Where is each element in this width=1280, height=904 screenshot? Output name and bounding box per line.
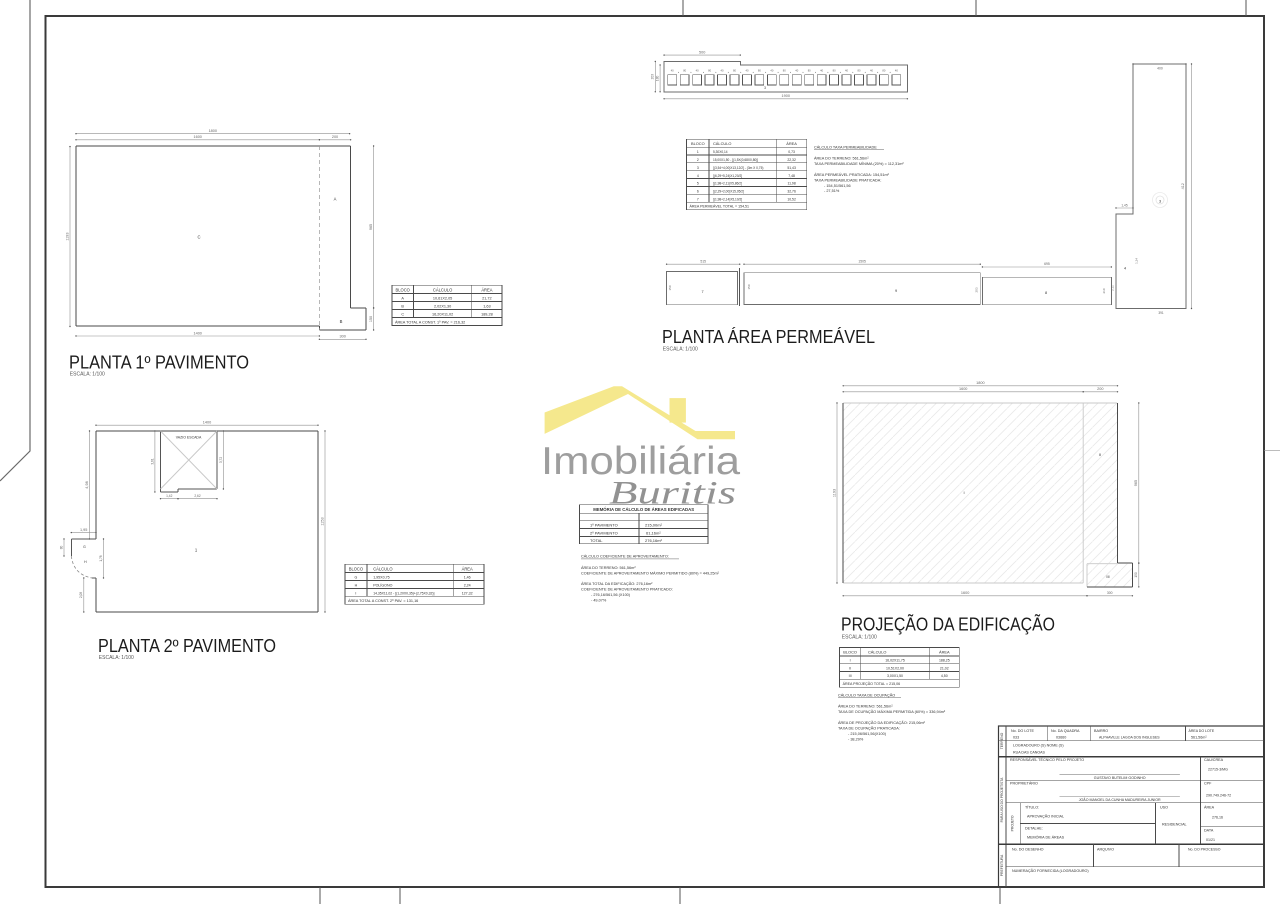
svg-text:965: 965 [369, 224, 373, 230]
svg-text:80: 80 [808, 69, 811, 73]
svg-text:TAXA PERMEABILIDADE PRATICADA:: TAXA PERMEABILIDADE PRATICADA: [814, 178, 881, 182]
svg-text:10,61X2,05: 10,61X2,05 [433, 296, 452, 300]
svg-text:PROJEÇÃO DA EDIFICAÇÃO: PROJEÇÃO DA EDIFICAÇÃO [841, 614, 1055, 635]
svg-text:40: 40 [696, 69, 699, 73]
svg-text:300: 300 [340, 335, 346, 339]
svg-text:ÁREA: ÁREA [939, 650, 950, 655]
svg-text:POLÍGONO: POLÍGONO [373, 584, 392, 588]
svg-text:I: I [355, 591, 356, 595]
svg-text:5: 5 [697, 182, 699, 186]
svg-text:40: 40 [820, 69, 823, 73]
svg-text:1800: 1800 [976, 381, 984, 385]
svg-text:2,24: 2,24 [464, 584, 471, 588]
svg-text:PROJETO: PROJETO [1011, 815, 1015, 831]
svg-text:7: 7 [697, 197, 699, 201]
svg-text:CÁLCULO: CÁLCULO [433, 287, 452, 292]
svg-text:1º PAVIMENTO: 1º PAVIMENTO [590, 523, 618, 528]
svg-text:ÁREA TOTAL A CONST. 1º PAV. =: ÁREA TOTAL A CONST. 1º PAV. = 216,32 [395, 320, 465, 324]
svg-text:4: 4 [697, 174, 699, 178]
svg-text:II: II [1099, 452, 1101, 457]
svg-text:COEFICIENTE DE APROVEITAMENTO: COEFICIENTE DE APROVEITAMENTO PRATICADO: [581, 588, 673, 592]
svg-text:No. DA QUADRA: No. DA QUADRA [1051, 729, 1080, 733]
svg-text:[(1,98+2,11)X5,86/2]: [(1,98+2,11)X5,86/2] [713, 182, 742, 186]
svg-text:3,72: 3,72 [219, 457, 223, 463]
svg-text:127,32: 127,32 [462, 591, 473, 595]
svg-text:2: 2 [697, 158, 699, 162]
svg-text:BLOCO: BLOCO [843, 650, 857, 655]
svg-text:200: 200 [1097, 387, 1103, 391]
svg-text:11,98: 11,98 [787, 182, 795, 186]
svg-text:300: 300 [1107, 591, 1113, 595]
svg-text:500: 500 [699, 51, 705, 55]
svg-text:USO: USO [1160, 805, 1168, 809]
svg-text:1600: 1600 [961, 591, 969, 595]
svg-text:80: 80 [833, 69, 836, 73]
svg-text:8: 8 [1045, 291, 1047, 295]
svg-text:- 154,51/561,56: - 154,51/561,56 [824, 184, 851, 188]
svg-text:40: 40 [845, 69, 848, 73]
svg-text:DATA: DATA [1204, 829, 1214, 833]
svg-text:BLOCO: BLOCO [396, 287, 410, 292]
svg-text:3: 3 [1159, 199, 1161, 203]
svg-text:MEMÓRIA DE ÁREAS: MEMÓRIA DE ÁREAS [1027, 835, 1065, 840]
svg-text:1: 1 [195, 547, 198, 552]
svg-text:H: H [355, 584, 358, 588]
svg-text:3,61: 3,61 [150, 458, 154, 464]
svg-text:4,50: 4,50 [941, 674, 948, 678]
svg-text:200: 200 [332, 135, 338, 139]
svg-text:80: 80 [733, 69, 736, 73]
svg-text:400: 400 [1157, 67, 1163, 71]
svg-text:80: 80 [59, 546, 63, 550]
svg-text:Buritis: Buritis [609, 476, 736, 512]
svg-text:1400: 1400 [193, 331, 201, 335]
svg-text:ALPHAVILLE LAGOA DOS INGLESES: ALPHAVILLE LAGOA DOS INGLESES [1099, 736, 1160, 740]
svg-text:4: 4 [1124, 266, 1126, 270]
svg-text:COEFICIENTE DE APROVEITAMENTO: COEFICIENTE DE APROVEITAMENTO MÁXIMO PER… [581, 572, 720, 576]
svg-text:I: I [963, 490, 964, 495]
svg-text:TOTAL: TOTAL [590, 538, 603, 543]
svg-text:ÁREA DO TERRENO: 561,56m²: ÁREA DO TERRENO: 561,56m² [838, 704, 893, 708]
svg-text:215,00m²: 215,00m² [645, 523, 663, 528]
svg-text:[(6,29+5,24)X1,20/2]: [(6,29+5,24)X1,20/2] [713, 174, 742, 178]
svg-text:H: H [84, 560, 87, 564]
svg-text:ARQUIVO: ARQUIVO [1097, 848, 1114, 852]
svg-text:CÁLCULO: CÁLCULO [713, 141, 731, 146]
svg-text:695: 695 [1044, 262, 1050, 266]
svg-text:CÁLCULO TAXA PERMEABILIDADE: CÁLCULO TAXA PERMEABILIDADE [814, 145, 877, 149]
svg-text:CÁLCULO: CÁLCULO [373, 567, 392, 572]
svg-text:412: 412 [1181, 183, 1185, 189]
svg-text:No. DO LOTE: No. DO LOTE [1011, 729, 1034, 733]
svg-text:1800: 1800 [209, 129, 217, 133]
svg-text:TAXA PERMEABILIDADE MÍNIMA (20: TAXA PERMEABILIDADE MÍNIMA (20%) = 112,3… [814, 162, 904, 166]
svg-text:10,51X2,00: 10,51X2,00 [886, 666, 904, 670]
svg-text:PLANTA 1º PAVIMENTO: PLANTA 1º PAVIMENTO [69, 352, 249, 372]
svg-text:150: 150 [1134, 572, 1138, 578]
svg-text:GUSTAVO BUTELIM GODINHO: GUSTAVO BUTELIM GODINHO [1094, 776, 1146, 780]
svg-text:C: C [401, 313, 404, 317]
svg-text:15,00X1,50 - [(1,5X(0,68X0,80): 15,00X1,50 - [(1,5X(0,68X0,80)] [713, 158, 758, 162]
svg-text:1,95X0,75: 1,95X0,75 [373, 576, 389, 580]
svg-text:3: 3 [764, 86, 766, 90]
svg-text:40: 40 [721, 69, 724, 73]
svg-text:G: G [355, 576, 358, 580]
svg-text:ÁREA DO TERRENO: 561,56m²: ÁREA DO TERRENO: 561,56m² [814, 156, 869, 160]
svg-text:[(2,29+2,00)X15,05/2]: [(2,29+2,00)X15,05/2] [713, 189, 744, 193]
svg-text:40: 40 [895, 69, 898, 73]
svg-text:ÁREA DO TERRENO: 561,56m²: ÁREA DO TERRENO: 561,56m² [581, 566, 636, 570]
svg-text:LOGRADOURO (S) NOME (S): LOGRADOURO (S) NOME (S) [1013, 743, 1064, 747]
svg-text:32,76: 32,76 [787, 189, 796, 193]
svg-text:2,11: 2,11 [1111, 285, 1115, 291]
svg-text:1,78: 1,78 [99, 555, 103, 561]
svg-text:276,16m²: 276,16m² [645, 538, 663, 543]
svg-text:40: 40 [746, 69, 749, 73]
svg-text:203: 203 [975, 287, 979, 292]
svg-text:BLOCO: BLOCO [691, 141, 705, 146]
svg-text:G: G [83, 545, 86, 549]
svg-text:A: A [401, 296, 404, 300]
svg-text:CÁLCULO TAXA DE OCUPAÇÃO: CÁLCULO TAXA DE OCUPAÇÃO [838, 693, 895, 698]
svg-text:180: 180 [656, 76, 660, 82]
svg-text:7,48: 7,48 [788, 174, 795, 178]
svg-text:ÁREA: ÁREA [462, 567, 473, 572]
svg-text:21,72: 21,72 [482, 296, 492, 300]
svg-text:B: B [340, 319, 343, 324]
svg-text:16,02X11,75: 16,02X11,75 [885, 659, 905, 663]
svg-text:965: 965 [1134, 480, 1138, 486]
svg-text:I: I [850, 659, 851, 663]
svg-text:01/21: 01/21 [1206, 838, 1215, 842]
svg-text:22,32: 22,32 [787, 158, 796, 162]
svg-text:1,45: 1,45 [1121, 203, 1127, 207]
svg-text:9: 9 [895, 289, 897, 293]
svg-text:40: 40 [870, 69, 873, 73]
svg-text:1,24: 1,24 [1135, 258, 1139, 264]
svg-text:515: 515 [700, 260, 706, 264]
svg-text:II: II [849, 666, 851, 670]
svg-text:5,30X0,14: 5,30X0,14 [713, 150, 728, 154]
svg-text:VAZIO ESCADA: VAZIO ESCADA [176, 436, 202, 440]
svg-text:2,08: 2,08 [79, 592, 83, 598]
svg-text:CPF: CPF [1204, 782, 1212, 786]
svg-text:- 276,16/561,56 (X100): - 276,16/561,56 (X100) [591, 593, 631, 597]
svg-text:150: 150 [668, 285, 672, 290]
svg-text:1,63: 1,63 [483, 305, 490, 309]
svg-text:ÁREA: ÁREA [481, 287, 492, 292]
svg-text:51,43: 51,43 [787, 166, 796, 170]
svg-text:1,95: 1,95 [80, 528, 87, 532]
svg-text:RUA DAS CANOAS: RUA DAS CANOAS [1013, 750, 1046, 754]
svg-text:ÁREA DE PROJEÇÃO DA EDIFICAÇÃO: ÁREA DE PROJEÇÃO DA EDIFICAÇÃO: 215,06m² [838, 720, 926, 725]
svg-text:APROVAÇÃO INICIAL: APROVAÇÃO INICIAL [1027, 814, 1064, 819]
svg-text:ÁREA: ÁREA [1204, 805, 1215, 809]
svg-text:III: III [849, 674, 852, 678]
svg-text:BAIRRO: BAIRRO [1094, 729, 1108, 733]
svg-text:BLOCO: BLOCO [349, 567, 363, 572]
svg-text:80: 80 [858, 69, 861, 73]
svg-text:7: 7 [701, 290, 703, 294]
svg-text:61,16m²: 61,16m² [646, 530, 661, 535]
svg-text:- 49,07%: - 49,07% [591, 599, 607, 603]
svg-text:ESCALA: 1/100: ESCALA: 1/100 [99, 655, 134, 661]
svg-text:033: 033 [1013, 736, 1019, 740]
svg-text:ÁREA DO LOTE: ÁREA DO LOTE [1189, 729, 1215, 733]
svg-text:TERRENO: TERRENO [1000, 732, 1004, 749]
svg-text:80: 80 [708, 69, 711, 73]
svg-text:JOÃO MANOEL DA CUNHA MADUREIRA: JOÃO MANOEL DA CUNHA MADUREIRA JUNIOR [1079, 797, 1161, 802]
svg-text:C: C [197, 234, 200, 239]
svg-text:PLANTA 2º PAVIMENTO: PLANTA 2º PAVIMENTO [98, 636, 276, 656]
svg-text:ÁREA PROJEÇÃO TOTAL = 215,06: ÁREA PROJEÇÃO TOTAL = 215,06 [843, 681, 901, 686]
svg-text:188,25: 188,25 [939, 659, 950, 663]
svg-text:1193: 1193 [832, 489, 836, 497]
svg-text:14,35X11,02 - [(1,20X0,35)+(2,: 14,35X11,02 - [(1,20X0,35)+(2,75X0,32)] [373, 591, 434, 595]
svg-text:2,02X1,30: 2,02X1,30 [434, 305, 451, 309]
svg-text:ÁREA PERMEÁVEL TOTAL = 154,51: ÁREA PERMEÁVEL TOTAL = 154,51 [690, 205, 750, 209]
svg-text:4,98: 4,98 [85, 481, 89, 488]
svg-text:TAXA DE OCUPAÇÃO PRATICADA:: TAXA DE OCUPAÇÃO PRATICADA: [838, 725, 900, 730]
svg-text:DETALHE:: DETALHE: [1025, 827, 1043, 831]
svg-text:1505: 1505 [858, 260, 866, 264]
svg-text:22715-3/MG: 22715-3/MG [1208, 768, 1228, 772]
svg-text:1900: 1900 [782, 94, 790, 98]
svg-text:No. DO PROCESSO: No. DO PROCESSO [1188, 848, 1221, 852]
svg-text:2,62: 2,62 [194, 494, 200, 498]
svg-text:6: 6 [697, 189, 699, 193]
svg-text:80: 80 [758, 69, 761, 73]
svg-text:- 38,29%: - 38,29% [848, 737, 864, 741]
svg-text:MEMÓRIA DE CÁLCULO DE ÁREAS ED: MEMÓRIA DE CÁLCULO DE ÁREAS EDIFICADAS [593, 507, 694, 512]
svg-text:3,00X1,50: 3,00X1,50 [887, 674, 903, 678]
svg-text:RESIDENCIAL: RESIDENCIAL [1162, 823, 1187, 827]
svg-text:80: 80 [683, 69, 686, 73]
svg-text:ÁREA TOTAL DA EDIFICAÇÃO: 276,: ÁREA TOTAL DA EDIFICAÇÃO: 276,16m² [581, 581, 653, 586]
svg-text:03660: 03660 [1056, 736, 1066, 740]
svg-text:2º PAVIMENTO: 2º PAVIMENTO [590, 530, 618, 535]
svg-text:NUMERAÇÃO FORNECIDA (LOGRADOUR: NUMERAÇÃO FORNECIDA (LOGRADOURO) [1012, 868, 1089, 873]
svg-text:1153: 1153 [320, 517, 324, 525]
svg-text:III: III [1106, 574, 1109, 579]
svg-text:TÍTULO:: TÍTULO: [1025, 805, 1039, 809]
svg-text:CÁLCULO: CÁLCULO [868, 650, 886, 655]
svg-text:ÁREA PERMEÁVEL PRATICADA: 154,: ÁREA PERMEÁVEL PRATICADA: 154,51m² [814, 173, 890, 177]
svg-text:150: 150 [369, 316, 373, 322]
svg-text:1600: 1600 [959, 387, 967, 391]
svg-text:A: A [334, 196, 337, 201]
svg-text:ESCALA: 1/100: ESCALA: 1/100 [842, 635, 877, 641]
svg-text:1600: 1600 [193, 135, 201, 139]
svg-text:- 27,51%: - 27,51% [824, 189, 840, 193]
svg-text:CAU/CREA: CAU/CREA [1204, 758, 1224, 762]
svg-text:TAXA DE OCUPAÇÃO MÁXIMA PERMIT: TAXA DE OCUPAÇÃO MÁXIMA PERMITIDA (60%) … [838, 709, 946, 714]
svg-text:PROPRIETÁRIO: PROPRIETÁRIO [1010, 782, 1038, 786]
svg-text:ÁREA: ÁREA [786, 141, 797, 146]
svg-text:0,73: 0,73 [788, 150, 795, 154]
svg-text:1: 1 [697, 150, 699, 154]
svg-text:[(1,98+2,14)X5,10/2]: [(1,98+2,14)X5,10/2] [713, 197, 742, 201]
svg-text:40: 40 [770, 69, 773, 73]
svg-text:40: 40 [795, 69, 798, 73]
svg-text:10,52: 10,52 [787, 197, 796, 201]
svg-text:290.749.246-72: 290.749.246-72 [1206, 794, 1231, 798]
svg-text:16,20X11,02: 16,20X11,02 [432, 313, 453, 317]
svg-text:3: 3 [697, 166, 699, 170]
svg-text:276,16: 276,16 [1212, 816, 1223, 820]
svg-text:ESCALA: 1/100: ESCALA: 1/100 [663, 347, 698, 353]
svg-text:CÁLCULO COEFICIENTE DE APROVEI: CÁLCULO COEFICIENTE DE APROVEITAMENTO: [581, 555, 669, 559]
svg-text:- 215,06/561,56(X100): - 215,06/561,56(X100) [848, 732, 887, 736]
svg-text:150: 150 [747, 284, 751, 289]
svg-text:1400: 1400 [203, 421, 211, 425]
svg-text:No. DO DESENHO: No. DO DESENHO [1012, 848, 1044, 852]
svg-text:PARA USO DO PROJETISTA: PARA USO DO PROJETISTA [1000, 777, 1004, 822]
svg-text:40: 40 [671, 69, 674, 73]
svg-text:203: 203 [651, 74, 655, 80]
svg-text:PLANTA ÁREA PERMEÁVEL: PLANTA ÁREA PERMEÁVEL [662, 327, 875, 347]
svg-text:ÁREA TOTAL A CONST. 2º PAV. =: ÁREA TOTAL A CONST. 2º PAV. = 131,16 [348, 599, 418, 603]
svg-text:21,02: 21,02 [940, 666, 949, 670]
svg-text:[(3,54+4,00)X13,12/2] - (3m X: [(3,54+4,00)X13,12/2] - (3m X 0,75) [713, 166, 763, 170]
svg-text:210: 210 [1102, 288, 1106, 293]
svg-text:RESPONSÁVEL TÉCNICO PELO PROJE: RESPONSÁVEL TÉCNICO PELO PROJETO [1010, 757, 1084, 762]
svg-text:ESCALA: 1/100: ESCALA: 1/100 [70, 372, 105, 378]
svg-text:1193: 1193 [65, 232, 69, 240]
svg-text:B: B [401, 305, 404, 309]
svg-text:1,42: 1,42 [166, 494, 172, 498]
svg-text:189,28: 189,28 [481, 313, 493, 317]
svg-text:1,46: 1,46 [464, 576, 471, 580]
svg-text:391: 391 [1158, 311, 1164, 315]
svg-text:80: 80 [783, 69, 786, 73]
svg-text:80: 80 [882, 69, 885, 73]
svg-text:PREFEITURA: PREFEITURA [1000, 854, 1004, 876]
svg-text:561,56m²: 561,56m² [1191, 736, 1207, 740]
